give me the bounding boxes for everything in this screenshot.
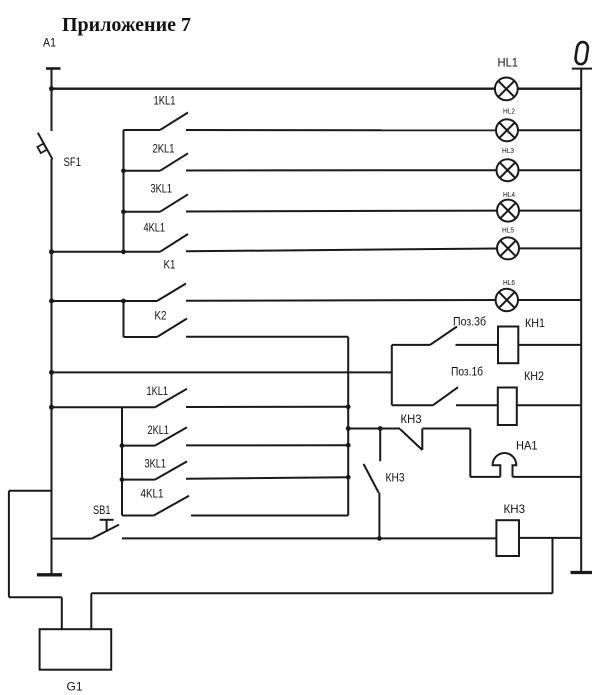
svg-text:Поз.3б: Поз.3б <box>453 315 486 329</box>
svg-text:K2: K2 <box>155 309 167 323</box>
svg-text:КН3: КН3 <box>504 502 526 516</box>
svg-text:2KL1: 2KL1 <box>153 142 175 156</box>
svg-text:3KL1: 3KL1 <box>151 182 173 196</box>
svg-text:K1: K1 <box>164 258 176 272</box>
svg-text:Приложение 7: Приложение 7 <box>62 14 191 36</box>
svg-text:HL6: HL6 <box>503 280 515 287</box>
svg-text:SB1: SB1 <box>93 503 111 517</box>
svg-text:1KL1: 1KL1 <box>147 384 169 398</box>
svg-text:1KL1: 1KL1 <box>154 94 176 108</box>
svg-text:4KL1: 4KL1 <box>141 487 164 501</box>
svg-text:КН2: КН2 <box>524 369 544 383</box>
svg-text:КН1: КН1 <box>525 316 545 330</box>
svg-text:3KL1: 3KL1 <box>145 457 167 471</box>
svg-text:HL1: HL1 <box>498 56 519 70</box>
svg-text:HL5: HL5 <box>502 228 514 235</box>
svg-text:HL3: HL3 <box>502 148 514 155</box>
svg-text:Поз.1б: Поз.1б <box>451 365 483 379</box>
svg-text:G1: G1 <box>67 680 83 694</box>
svg-text:A1: A1 <box>43 36 56 50</box>
svg-text:4KL1: 4KL1 <box>144 221 166 235</box>
svg-text:КН3: КН3 <box>386 471 405 485</box>
svg-text:КН3: КН3 <box>401 412 422 426</box>
svg-text:2KL1: 2KL1 <box>148 423 170 437</box>
svg-text:HL4: HL4 <box>503 192 515 199</box>
svg-text:HL2: HL2 <box>503 109 515 116</box>
svg-text:HA1: HA1 <box>516 439 538 453</box>
svg-text:SF1: SF1 <box>64 155 82 169</box>
